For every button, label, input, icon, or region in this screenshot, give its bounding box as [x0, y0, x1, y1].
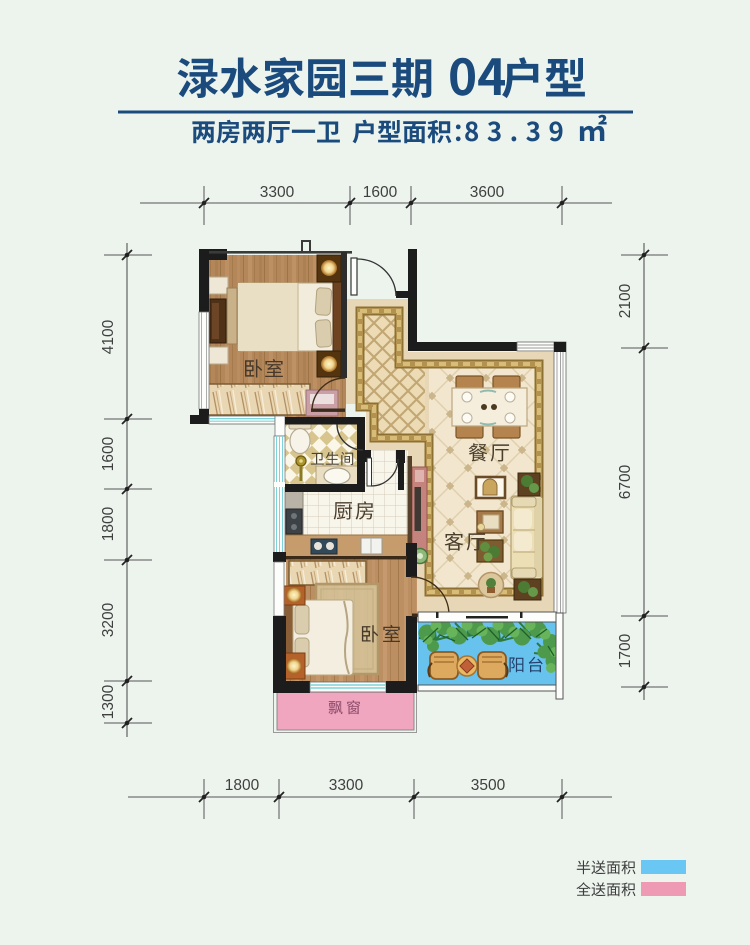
svg-text:1300: 1300: [100, 684, 117, 719]
svg-text:3300: 3300: [329, 777, 364, 794]
svg-text:4100: 4100: [100, 319, 117, 354]
svg-text:1800: 1800: [225, 777, 260, 794]
svg-text:1700: 1700: [617, 633, 634, 668]
svg-text:6700: 6700: [617, 464, 634, 499]
svg-text:2100: 2100: [617, 283, 634, 318]
svg-text:3600: 3600: [470, 184, 505, 201]
svg-text:3300: 3300: [260, 184, 295, 201]
svg-text:1600: 1600: [363, 184, 398, 201]
svg-text:3200: 3200: [100, 602, 117, 637]
svg-text:1600: 1600: [100, 436, 117, 471]
svg-text:3500: 3500: [471, 777, 506, 794]
svg-text:1800: 1800: [100, 506, 117, 541]
